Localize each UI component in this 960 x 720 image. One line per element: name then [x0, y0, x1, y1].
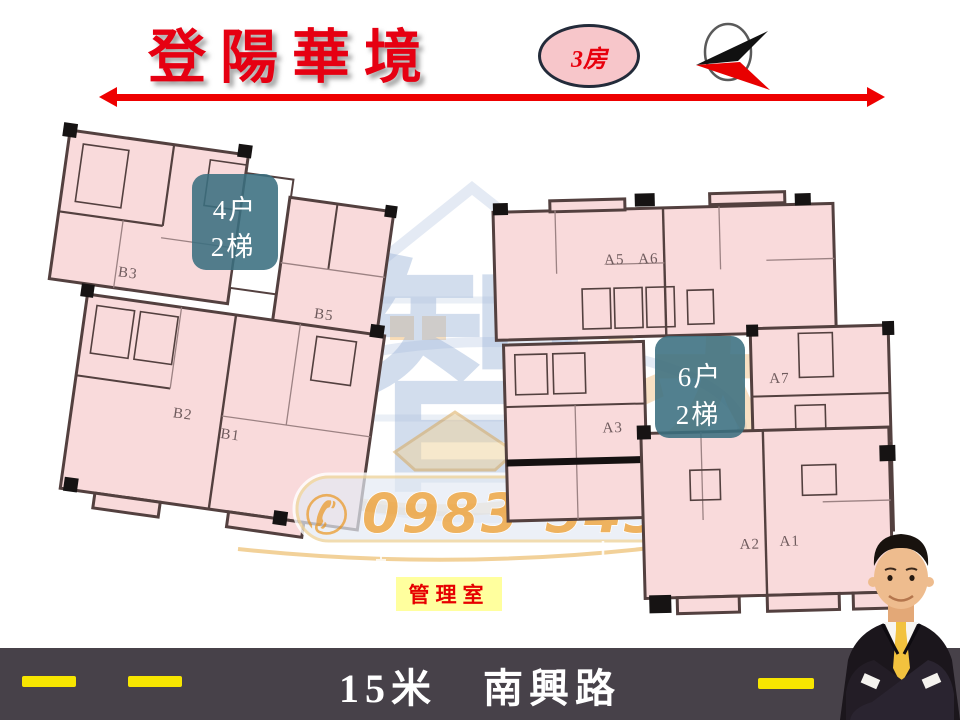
- stair-note-right-line2: 2梯: [676, 400, 721, 430]
- stair-note-right-line1: 6户: [678, 362, 723, 392]
- management-room-label: 管理室: [409, 579, 490, 609]
- phone-icon: ✆: [304, 486, 349, 546]
- stair-note-left-line2: 2梯: [211, 232, 256, 262]
- unit-label-a3: A3: [602, 420, 623, 437]
- unit-label-a2: A2: [739, 536, 760, 553]
- unit-label-a7: A7: [769, 371, 790, 388]
- stair-note-left-line1: 4户: [213, 195, 258, 225]
- unit-label-b1: B1: [219, 426, 241, 445]
- unit-label-a5: A5: [604, 252, 625, 269]
- management-room-note: 管理室: [396, 577, 502, 611]
- unit-label-a1: A1: [779, 533, 800, 550]
- stair-note-right: 6户 2梯: [655, 336, 745, 438]
- unit-label-b2: B2: [172, 405, 194, 424]
- unit-label-a6: A6: [638, 251, 659, 268]
- unit-label-b3: B3: [117, 264, 139, 283]
- floorplan-ad-slide: 登陽華境 3房 智 块: [0, 0, 960, 720]
- unit-label-b5: B5: [313, 306, 335, 325]
- site-plan: 智 块: [0, 0, 960, 720]
- stair-note-left: 4户 2梯: [192, 174, 278, 270]
